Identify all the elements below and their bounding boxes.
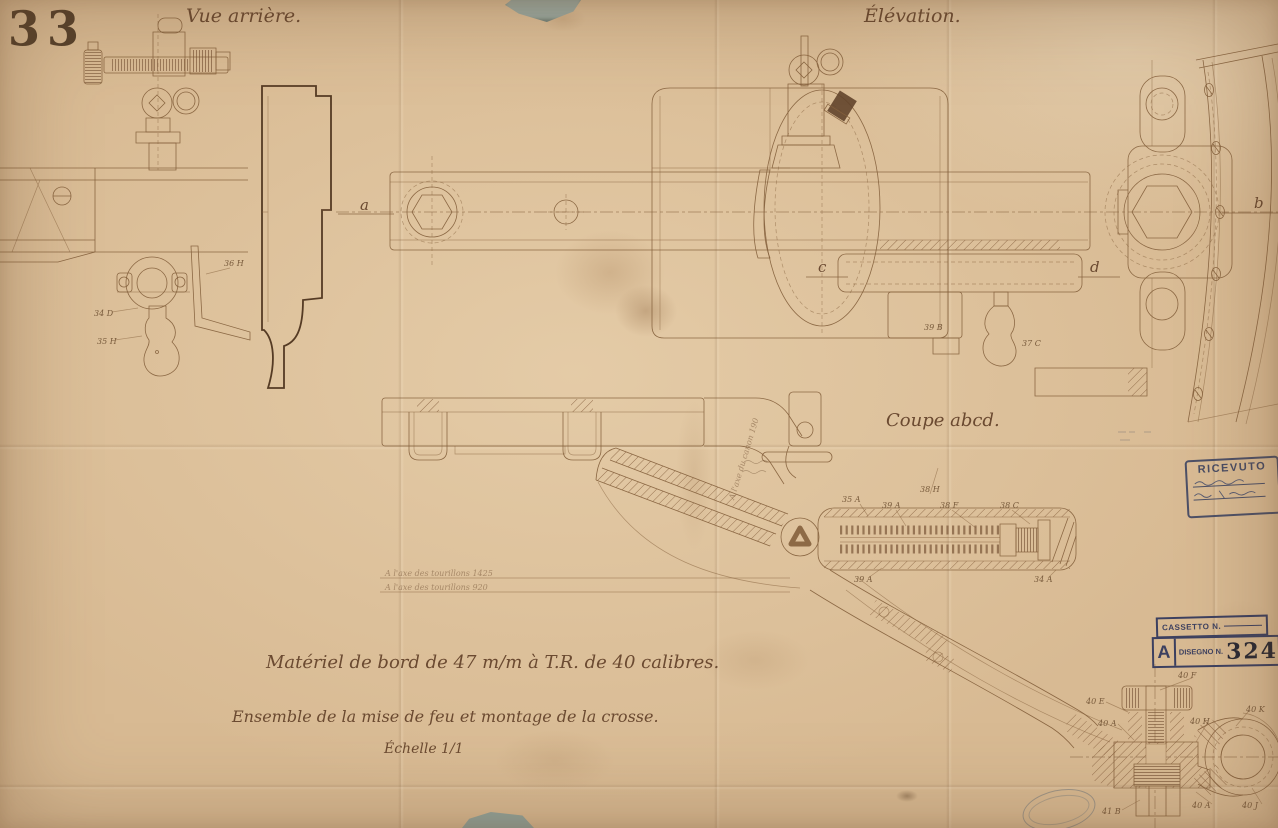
part-label: 40 A [1191,801,1211,810]
part-label: 34 D [94,309,114,318]
section-letter-a: a [360,196,369,214]
title-scale: Échelle 1/1 [383,739,464,757]
part-label: 38 C [1000,501,1019,510]
section-letter-b: b [1254,194,1264,212]
part-label: 35 H [97,337,118,346]
part-label: 38 F [940,501,959,510]
part-label: 40 E [1085,697,1105,706]
elevation-drawing [336,36,1278,396]
part-label: 40 J [1241,801,1259,810]
rear-view-drawing [0,14,331,388]
part-label: 39 B [924,323,943,332]
part-label: 40 F [1177,671,1197,680]
ricevuto-handwriting [1190,472,1269,504]
ricevuto-stamp: RICEVUTO [1185,456,1278,519]
part-label: 40 A [1097,719,1117,728]
technical-drawing: Vue arrière. Élévation. Coupe abcd. Maté… [0,0,1278,828]
plate-number: 33 [8,1,86,57]
part-label: 40 K [1245,705,1266,714]
label-rear-view: Vue arrière. [186,5,301,27]
part-label: 39 A [882,501,901,510]
disegno-number: 324 [1226,637,1278,664]
part-label: 35 A [842,495,861,504]
note-axis1: A l'axe des tourillons 1425 [384,569,493,578]
title-line1: Matériel de bord de 47 m/m à T.R. de 40 … [265,652,719,673]
section-letter-d: d [1090,258,1100,276]
note-axis2: A l'axe des tourillons 920 [384,583,488,592]
disegno-label: DISEGNO N. [1179,647,1223,657]
part-label: 41 B [1101,807,1121,816]
cassetto-label: CASSETTO N. [1162,622,1221,633]
drawing-sheet: Vue arrière. Élévation. Coupe abcd. Maté… [0,0,1278,828]
part-label: 37 C [1022,339,1041,348]
part-label: 36 H [224,259,245,268]
cassetto-fill-line [1224,624,1262,626]
note-canon-axis: A l'axe du canon 190 [727,417,761,502]
handwritten-labels: Vue arrière. Élévation. Coupe abcd. Maté… [186,4,1278,757]
part-label: 40 H [1189,717,1211,726]
label-section: Coupe abcd. [886,410,1000,431]
label-elevation: Élévation. [863,4,961,27]
title-line2: Ensemble de la mise de feu et montage de… [231,707,659,726]
disegno-stamp: A DISEGNO N. 324 [1152,635,1278,668]
disegno-letter: A [1154,639,1176,666]
section-letter-c: c [818,258,827,276]
